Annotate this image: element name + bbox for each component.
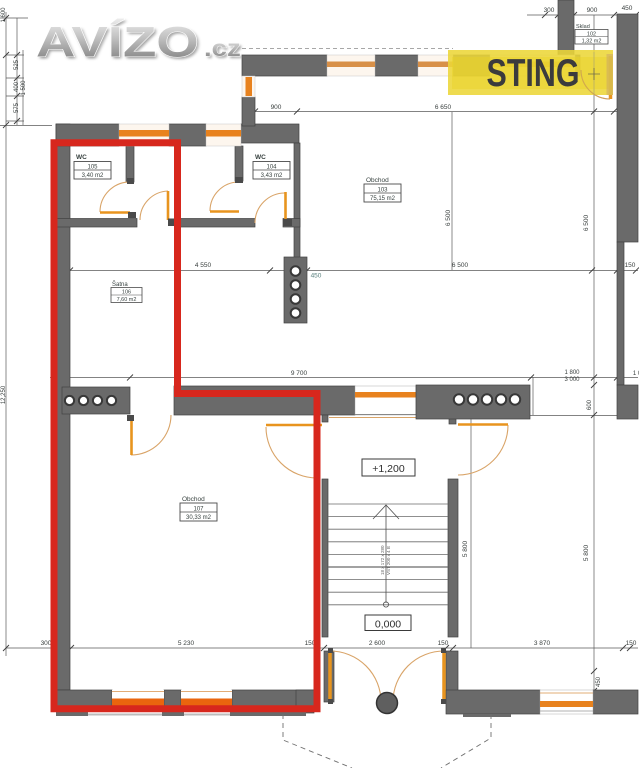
svg-text:3 870: 3 870 (534, 640, 551, 647)
svg-text:900: 900 (587, 7, 598, 14)
svg-text:3,40 m2: 3,40 m2 (82, 173, 104, 179)
svg-text:600: 600 (587, 399, 593, 410)
svg-text:3 000: 3 000 (564, 377, 580, 383)
svg-text:75,15 m2: 75,15 m2 (370, 196, 396, 202)
svg-text:.cz: .cz (204, 36, 241, 61)
svg-text:102: 102 (587, 32, 596, 38)
svg-text:5 800: 5 800 (462, 540, 469, 557)
svg-text:103: 103 (377, 188, 388, 194)
svg-text:450: 450 (596, 676, 602, 687)
svg-text:6 500: 6 500 (583, 214, 590, 231)
svg-text:5 800: 5 800 (583, 544, 590, 561)
svg-text:1 500: 1 500 (21, 80, 27, 96)
svg-text:575: 575 (14, 102, 20, 113)
svg-text:1 800: 1 800 (564, 370, 580, 376)
svg-text:30,33 m2: 30,33 m2 (186, 515, 212, 521)
svg-text:Obchod: Obchod (366, 177, 389, 184)
svg-text:3,43 m2: 3,43 m2 (261, 173, 283, 179)
svg-text:9 700: 9 700 (291, 370, 308, 377)
svg-text:18 x 172 x 280: 18 x 172 x 280 (380, 545, 385, 575)
svg-text:525: 525 (14, 59, 20, 70)
svg-text:Šatna: Šatna (112, 281, 128, 288)
svg-text:106: 106 (122, 290, 131, 296)
svg-text:5 230: 5 230 (178, 640, 195, 647)
svg-text:+1,200: +1,200 (372, 463, 405, 475)
svg-text:6 500: 6 500 (445, 209, 452, 226)
svg-text:104: 104 (266, 165, 277, 171)
svg-text:450: 450 (311, 273, 322, 280)
svg-text:300: 300 (41, 640, 52, 647)
svg-text:1,32 m2: 1,32 m2 (582, 39, 602, 45)
svg-text:WC: WC (255, 154, 266, 161)
svg-text:150: 150 (626, 640, 637, 647)
svg-text:400: 400 (14, 81, 20, 92)
svg-text:Obchod: Obchod (182, 496, 205, 503)
svg-text:6 500: 6 500 (452, 262, 469, 269)
svg-text:150: 150 (625, 262, 636, 269)
svg-text:12,250: 12,250 (1, 385, 7, 404)
svg-text:AVÍZO: AVÍZO (36, 17, 199, 66)
svg-text:1 0: 1 0 (633, 371, 639, 377)
svg-text:7,60 m2: 7,60 m2 (117, 297, 137, 303)
svg-text:1 600: 1 600 (1, 7, 7, 23)
svg-text:VST 200 x 4 B: VST 200 x 4 B (386, 546, 391, 575)
svg-text:900: 900 (271, 104, 282, 111)
svg-text:2 600: 2 600 (369, 640, 386, 647)
svg-text:STING: STING (487, 51, 580, 94)
svg-text:450: 450 (622, 5, 633, 12)
svg-text:0,000: 0,000 (375, 619, 401, 631)
svg-text:150: 150 (438, 640, 449, 647)
svg-text:300: 300 (544, 7, 555, 14)
svg-text:WC: WC (76, 154, 87, 161)
svg-text:105: 105 (87, 165, 98, 171)
svg-text:107: 107 (193, 507, 204, 513)
svg-text:4 550: 4 550 (195, 262, 212, 269)
svg-text:6 650: 6 650 (435, 104, 452, 111)
